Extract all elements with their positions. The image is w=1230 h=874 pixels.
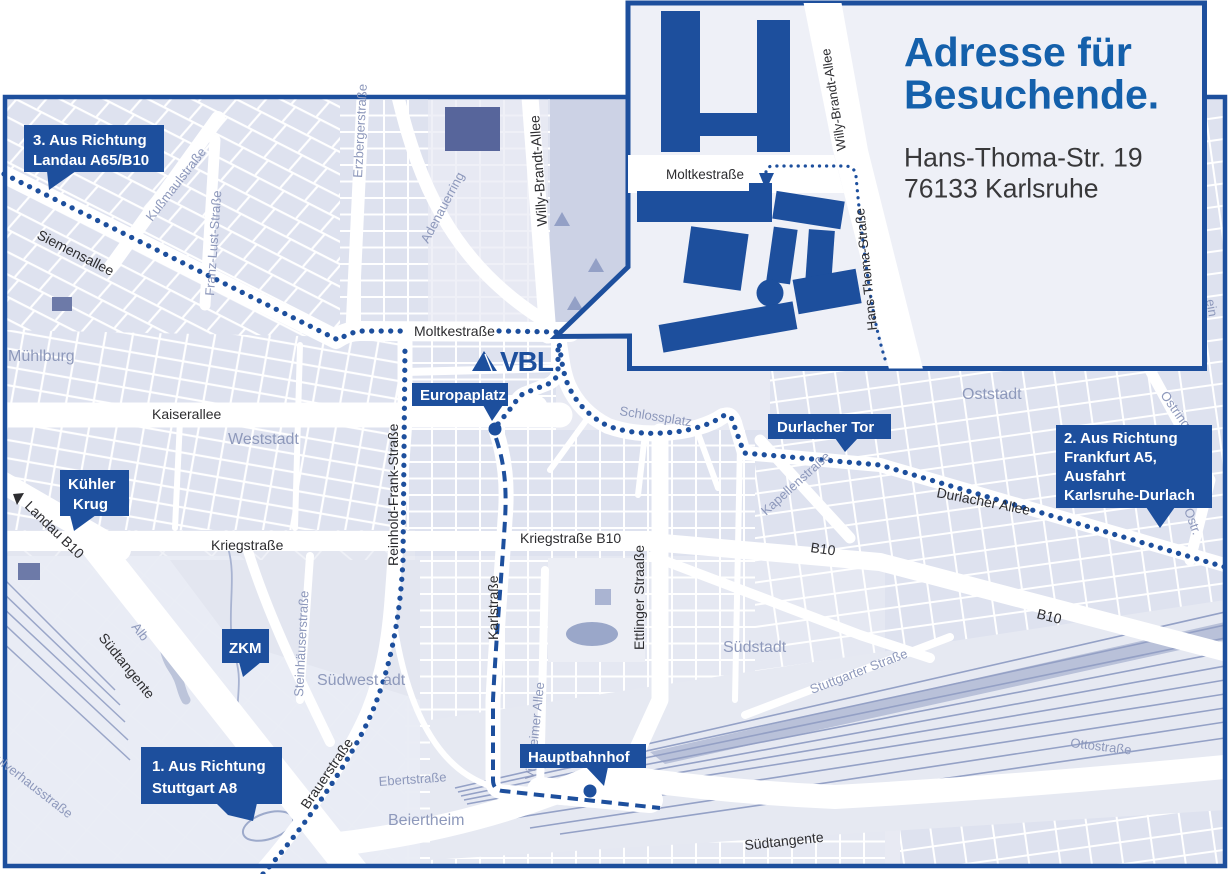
svg-text:Beiertheim: Beiertheim (388, 812, 464, 829)
svg-text:Moltkestraße: Moltkestraße (414, 323, 495, 339)
svg-text:Moltkestraße: Moltkestraße (666, 167, 744, 182)
svg-text:1. Aus Richtung: 1. Aus Richtung (152, 758, 266, 775)
svg-text:Ausfahrt: Ausfahrt (1064, 468, 1126, 485)
svg-text:Hauptbahnhof: Hauptbahnhof (528, 749, 631, 766)
svg-text:Adresse für: Adresse für (904, 29, 1132, 75)
svg-text:Kaiserallee: Kaiserallee (152, 406, 221, 422)
svg-text:Südwest: Südwest (317, 672, 379, 689)
svg-text:Hans-Thoma-Str. 19: Hans-Thoma-Str. 19 (904, 143, 1143, 173)
svg-text:Besuchende.: Besuchende. (904, 72, 1159, 118)
svg-text:Oststadt: Oststadt (962, 386, 1022, 403)
svg-text:Reinhold-Frank-Straße: Reinhold-Frank-Straße (385, 423, 401, 566)
svg-text:Kriegstraße: Kriegstraße (211, 537, 284, 553)
svg-text:2. Aus Richtung: 2. Aus Richtung (1064, 430, 1178, 447)
svg-text:Stuttgart A8: Stuttgart A8 (152, 780, 237, 797)
svg-text:3. Aus Richtung: 3. Aus Richtung (33, 132, 147, 149)
svg-text:adt: adt (383, 672, 406, 689)
svg-text:Frankfurt A5,: Frankfurt A5, (1064, 449, 1157, 466)
svg-text:Karlstraße: Karlstraße (485, 575, 501, 640)
svg-text:Kriegstraße B10: Kriegstraße B10 (520, 530, 621, 546)
svg-text:Ettlinger Straaße: Ettlinger Straaße (631, 545, 647, 650)
svg-text:Kühler: Kühler (68, 476, 116, 493)
svg-text:VBL: VBL (500, 346, 554, 377)
svg-text:Mühlburg: Mühlburg (8, 348, 75, 365)
svg-text:Südstadt: Südstadt (723, 639, 787, 656)
svg-text:Landau A65/B10: Landau A65/B10 (33, 152, 149, 169)
svg-text:Krug: Krug (73, 496, 108, 513)
svg-text:Durlacher Tor: Durlacher Tor (777, 419, 874, 436)
svg-text:Europaplatz: Europaplatz (420, 387, 506, 404)
svg-text:Karlsruhe-Durlach: Karlsruhe-Durlach (1064, 487, 1195, 504)
svg-text:ZKM: ZKM (229, 640, 262, 657)
svg-text:Weststadt: Weststadt (228, 431, 299, 448)
svg-text:76133 Karlsruhe: 76133 Karlsruhe (904, 174, 1098, 204)
